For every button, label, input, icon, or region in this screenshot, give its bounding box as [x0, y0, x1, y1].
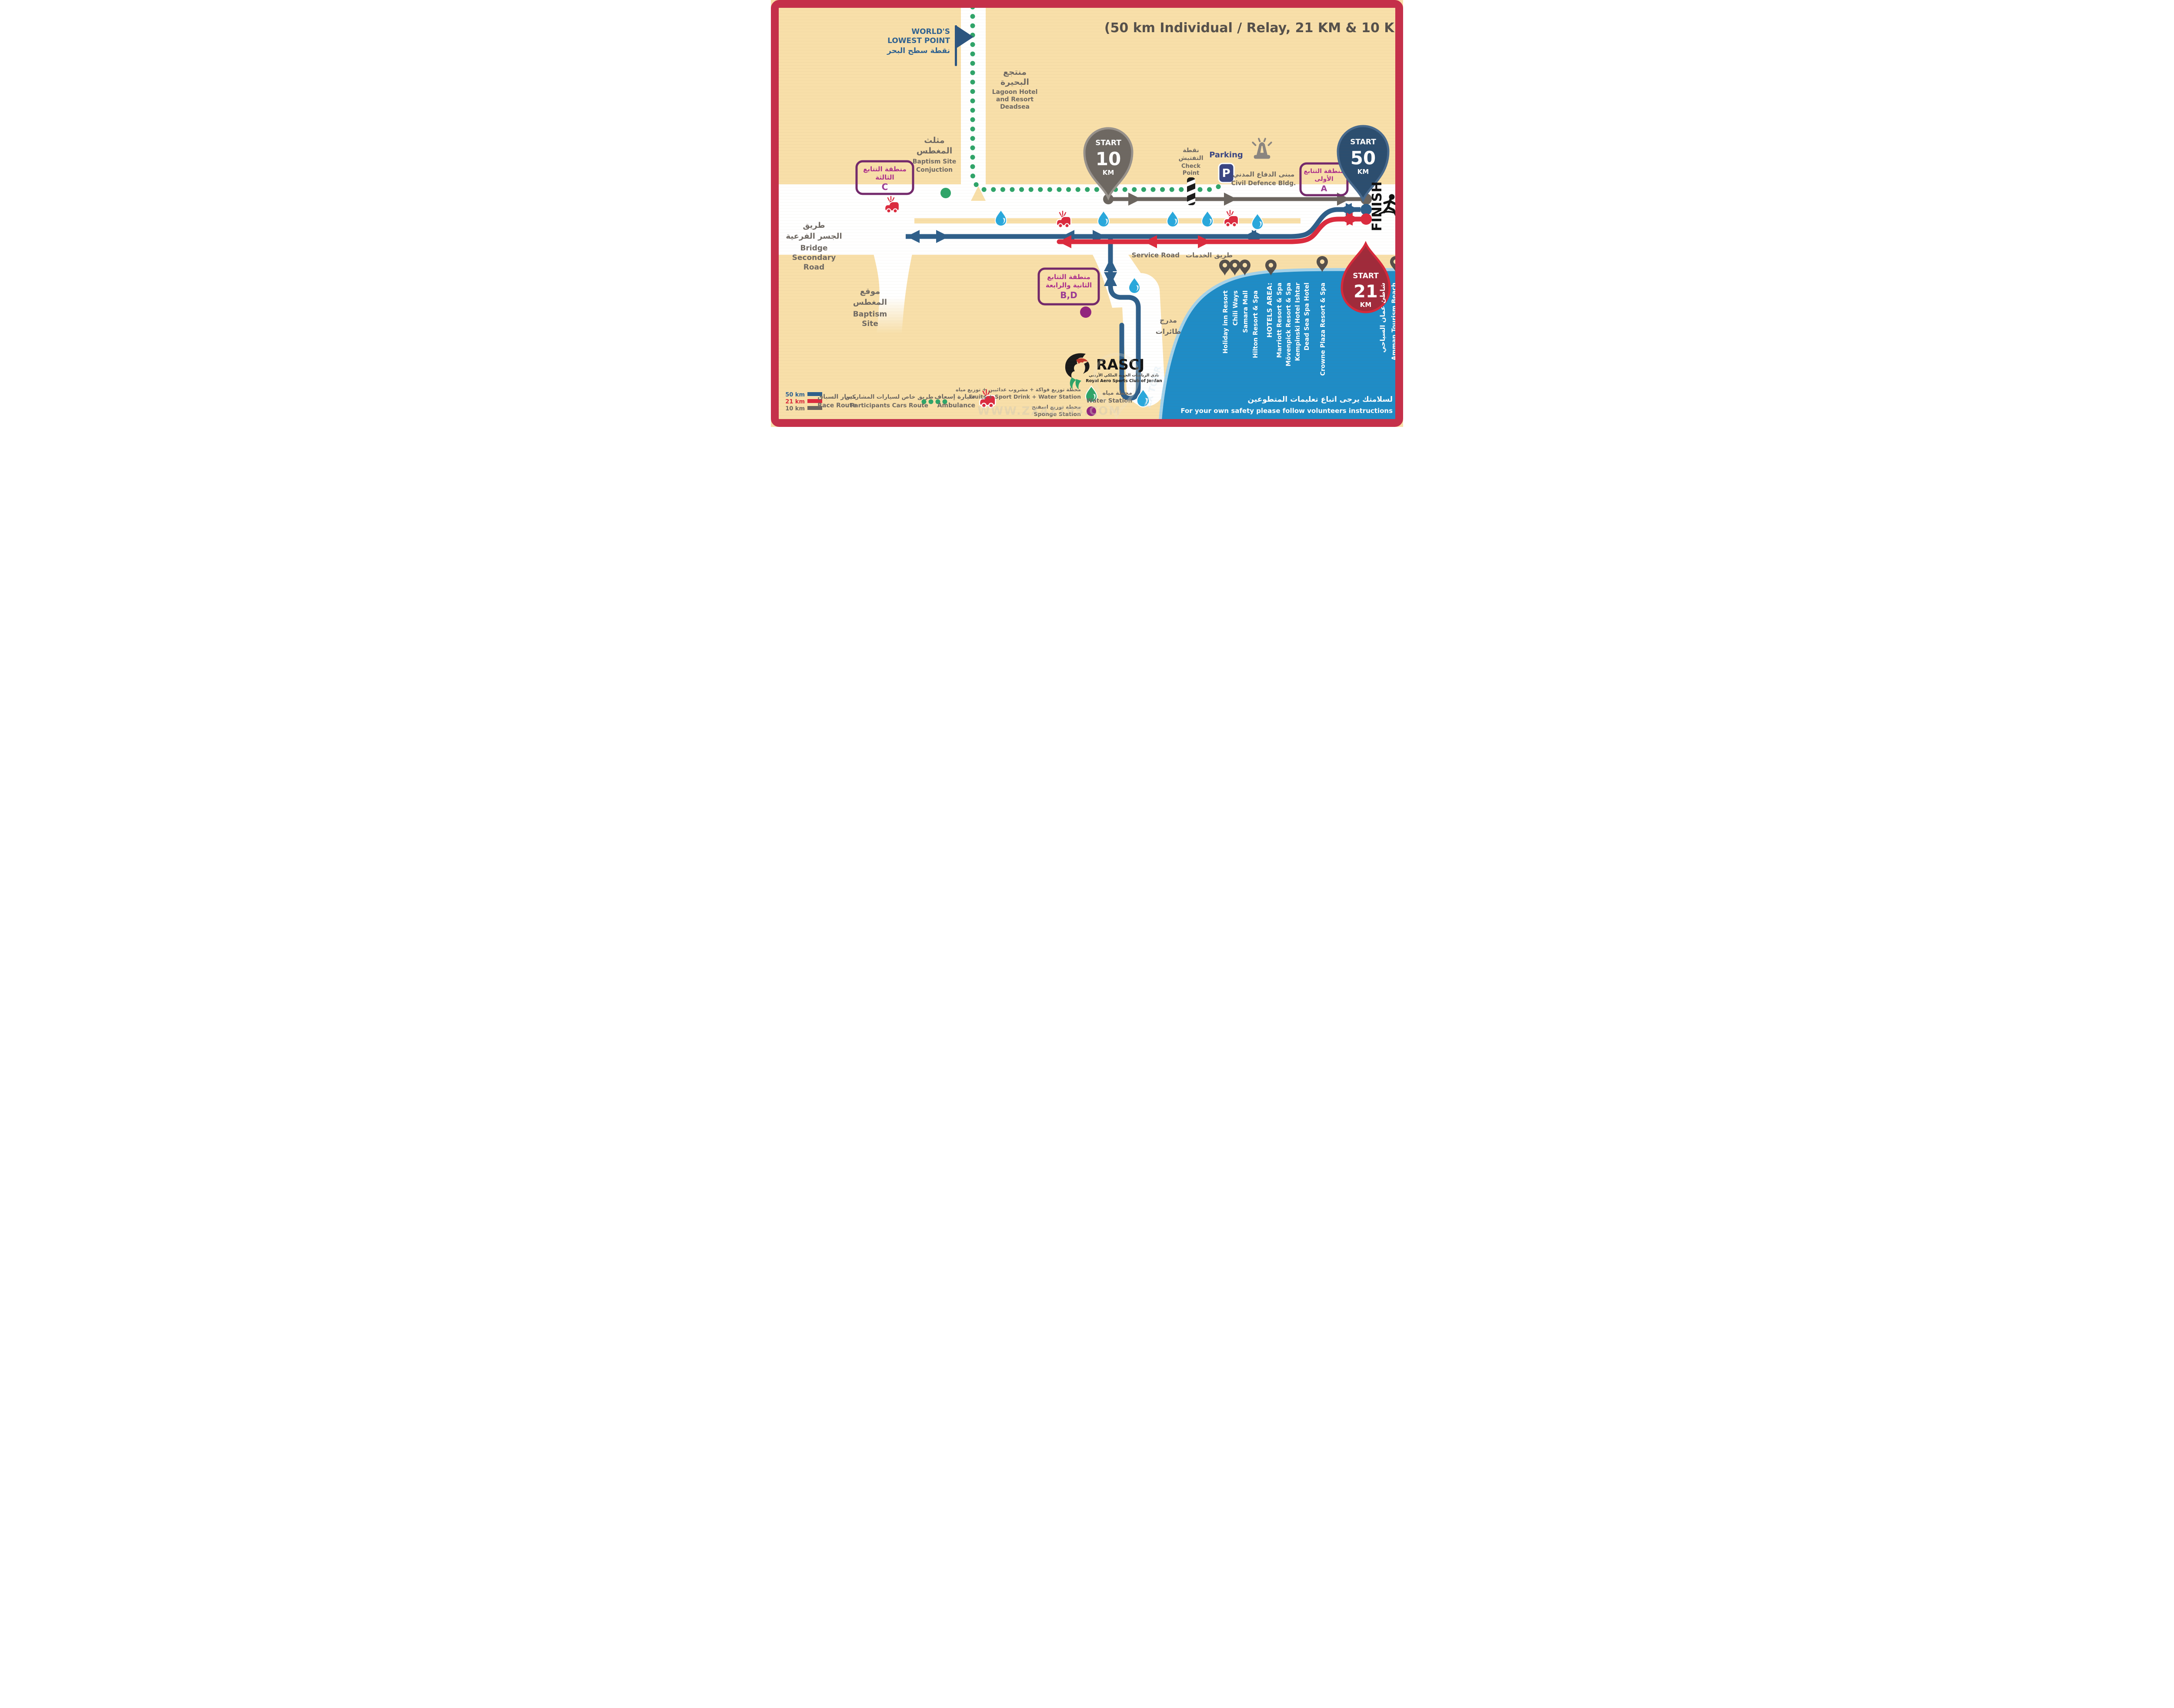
svg-text:محطة توزيع فواكة + مشروب عدائي: محطة توزيع فواكة + مشروب عدائيين + توزيع…	[956, 386, 1081, 393]
start-21-unit: KM	[1360, 301, 1372, 309]
legend-10km-label: 10 km	[785, 406, 805, 412]
zone-a-line2: الأولى	[1314, 175, 1333, 183]
start-21-label: START	[1353, 272, 1379, 280]
svg-text:Fruits + Sport Drink + Water S: Fruits + Sport Drink + Water Station	[969, 393, 1081, 400]
zone-c-line1: منطقة التتابع	[863, 165, 907, 173]
svg-text:Service Road: Service Road	[1132, 251, 1180, 259]
svg-text:الجسر الفرعية: الجسر الفرعية	[786, 232, 842, 241]
start-50-unit: KM	[1357, 168, 1369, 176]
svg-text:طريق خاص لسيارات المشاركين: طريق خاص لسيارات المشاركين	[845, 394, 934, 400]
race-route-map: P منطقة التتابع الثالثة C منطقة التتابع …	[771, 0, 1403, 427]
svg-text:نقطة سطح البحر: نقطة سطح البحر	[887, 47, 950, 55]
hotel-label: Hilton Resort & Spa	[1252, 290, 1259, 358]
hotel-label: HOTELS AREA:	[1266, 283, 1274, 338]
hotel-label: Holiday inn Resort	[1222, 290, 1229, 354]
svg-text:طائرات: طائرات	[1156, 327, 1181, 336]
zone-bd-line1: منطقة التتابع	[1047, 273, 1090, 281]
map-title: (50 km Individual / Relay, 21 KM & 10 KM…	[1104, 20, 1403, 36]
zone-c-line2: الثالثة	[875, 173, 894, 181]
station-dot-green	[940, 188, 951, 198]
hotel-label: Crowne Plaza Resort & Spa	[1320, 283, 1327, 376]
svg-text:Lagoon Hotel: Lagoon Hotel	[992, 89, 1038, 96]
hotel-label: Marriott Resort & Spa	[1276, 283, 1283, 358]
svg-text:المغطس: المغطس	[917, 146, 952, 156]
svg-text:Participants Cars Route: Participants Cars Route	[850, 402, 928, 409]
svg-text:Civil Defence Bldg.: Civil Defence Bldg.	[1231, 180, 1296, 187]
svg-text:مدرج: مدرج	[1160, 316, 1177, 324]
svg-text:مبنى الدفاع المدني: مبنى الدفاع المدني	[1233, 170, 1295, 178]
svg-text:طريق الخدمات: طريق الخدمات	[1186, 251, 1233, 259]
svg-text:Site: Site	[862, 320, 878, 328]
svg-text:موقع: موقع	[860, 287, 880, 296]
hotel-label: Chili Ways	[1232, 290, 1239, 326]
svg-text:LOWEST POINT: LOWEST POINT	[887, 37, 950, 45]
zone-bd-letter: B,D	[1060, 290, 1077, 300]
svg-text:Check: Check	[1181, 163, 1200, 170]
hotel-label: Mövenpick Resort & Spa	[1285, 283, 1292, 366]
svg-text:and Resort: and Resort	[996, 96, 1034, 103]
parking-icon-letter: P	[1222, 167, 1230, 180]
svg-text:Point: Point	[1183, 170, 1199, 176]
beach-label-ar: شاطئ عمان السياحي	[1379, 283, 1387, 353]
svg-text:المغطس: المغطس	[853, 298, 887, 307]
svg-text:لسلامتك يرجى اتباع تعليمات الم: لسلامتك يرجى اتباع تعليمات المتطوعين	[1248, 395, 1393, 404]
svg-text:نقطة: نقطة	[1183, 147, 1199, 154]
zone-a-letter: A	[1321, 184, 1327, 193]
legend-50km-label: 50 km	[785, 392, 805, 398]
zone-bd-line2: الثانية والرابعة	[1046, 281, 1092, 289]
svg-text:Secondary: Secondary	[792, 253, 836, 262]
svg-text:محطة مياه: محطة مياه	[1103, 390, 1132, 396]
zone-c-letter: C	[882, 182, 888, 192]
logo-ar: نادي الرياضات الجوية الملكي الأردني	[1089, 373, 1159, 378]
svg-text:Road: Road	[804, 263, 824, 272]
start-10-distance: 10	[1096, 148, 1121, 170]
svg-text:Baptism Site: Baptism Site	[913, 158, 957, 165]
start-50-distance: 50	[1350, 147, 1376, 169]
svg-text:Baptism: Baptism	[853, 310, 887, 319]
legend-route-lines: 50 km 21 km 10 km	[785, 392, 822, 412]
start-10-label: START	[1095, 139, 1121, 147]
svg-text:التفتيش: التفتيش	[1178, 155, 1203, 162]
zone-a-line1: منطقة التتابع	[1304, 168, 1344, 175]
watermark-url: WWW.ZX42195.COM	[977, 405, 1121, 418]
hotel-label: Dead Sea Spa Hotel	[1304, 283, 1310, 350]
finish-label: FINISH	[1370, 181, 1385, 231]
start-50-label: START	[1350, 138, 1376, 146]
hotel-label: Kempinski Hotel Ishtar	[1294, 283, 1301, 361]
svg-text:For your own safety please fol: For your own safety please follow volunt…	[1180, 407, 1393, 415]
legend-fruits-station: محطة توزيع فواكة + مشروب عدائيين + توزيع…	[956, 386, 1081, 400]
start-21-distance: 21	[1354, 282, 1378, 302]
svg-text:مثلث: مثلث	[924, 136, 944, 145]
checkpoint-barrier	[1187, 177, 1195, 205]
hotel-label: Samara Mall	[1242, 290, 1249, 333]
sponge-station-dot	[1080, 306, 1091, 318]
svg-text:WORLD'S: WORLD'S	[911, 27, 950, 36]
legend-21km-label: 21 km	[785, 399, 805, 405]
svg-text:Bridge: Bridge	[800, 244, 827, 253]
svg-text:طريق: طريق	[803, 221, 825, 230]
svg-text:Ambulance: Ambulance	[937, 402, 975, 409]
svg-text:منتجع: منتجع	[1003, 67, 1027, 77]
svg-text:البحيرة: البحيرة	[1000, 77, 1029, 87]
svg-text:Deadsea: Deadsea	[1000, 103, 1030, 110]
parking-label: Parking	[1209, 150, 1243, 160]
svg-text:Conjuction: Conjuction	[916, 166, 953, 173]
road-runway-strip	[1120, 272, 1166, 407]
start-10-unit: KM	[1103, 169, 1114, 176]
